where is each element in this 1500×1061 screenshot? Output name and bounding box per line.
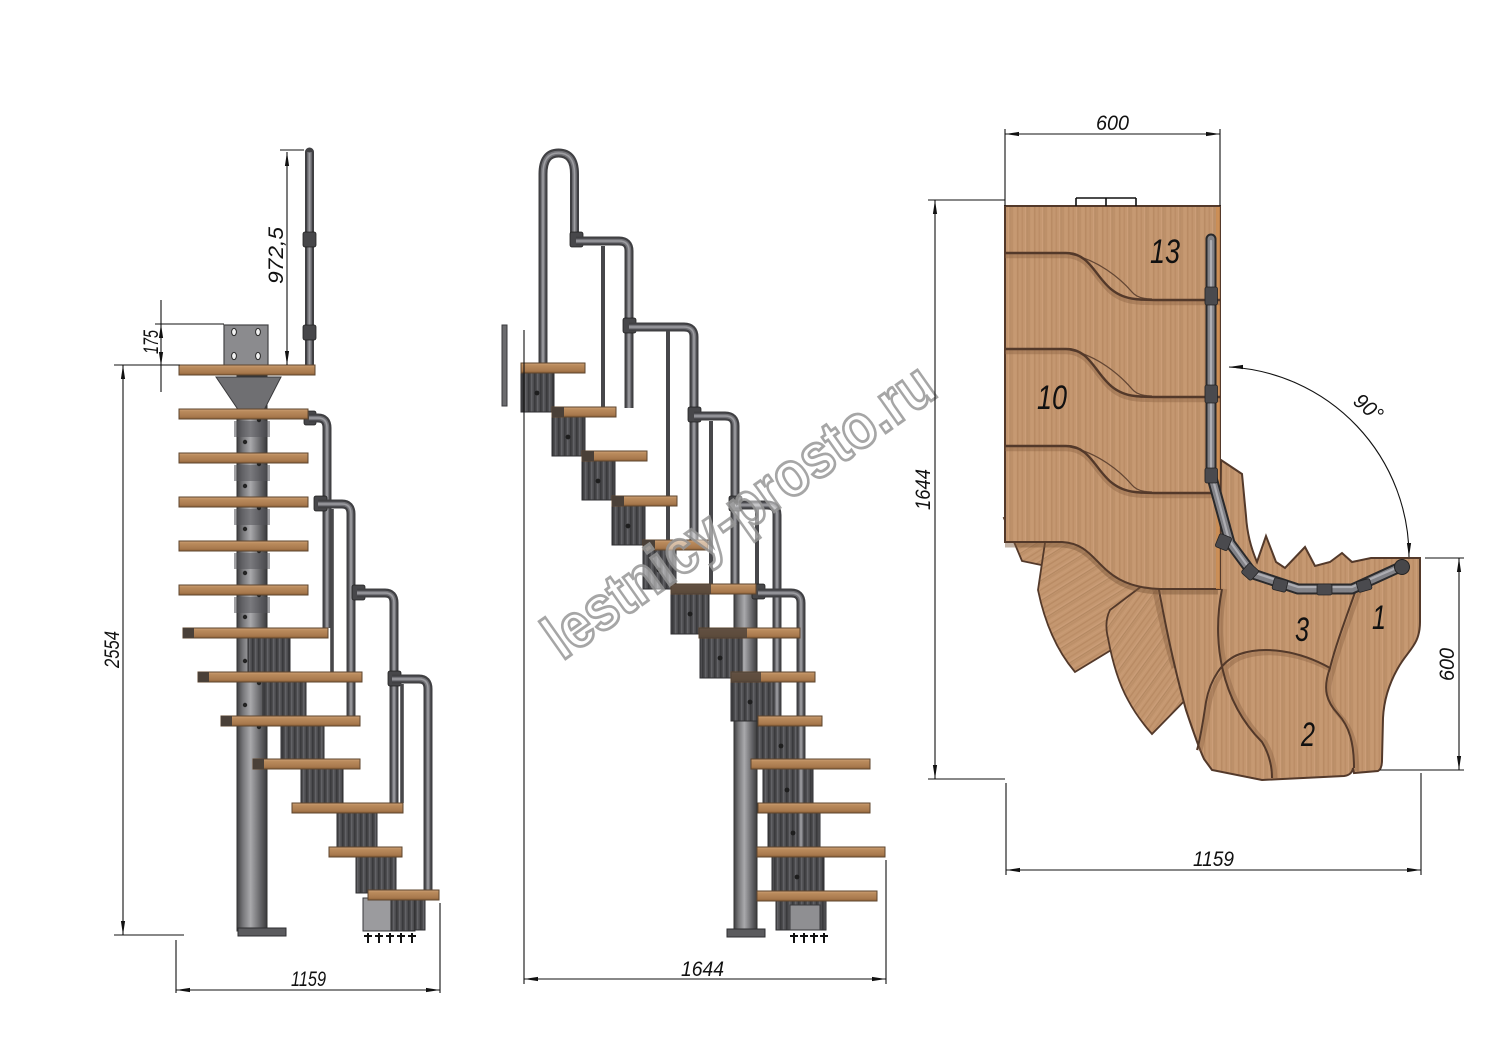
- svg-text:600: 600: [1436, 648, 1459, 681]
- svg-text:1159: 1159: [1193, 848, 1234, 871]
- svg-text:13: 13: [1150, 233, 1180, 271]
- svg-text:1644: 1644: [912, 469, 935, 510]
- svg-text:2: 2: [1300, 716, 1315, 754]
- svg-text:3: 3: [1295, 611, 1309, 649]
- svg-text:972,5: 972,5: [265, 227, 288, 284]
- svg-text:1644: 1644: [681, 958, 724, 981]
- svg-text:175: 175: [140, 330, 163, 354]
- svg-text:1159: 1159: [291, 968, 326, 991]
- svg-text:600: 600: [1096, 112, 1129, 135]
- svg-text:1: 1: [1372, 599, 1386, 637]
- svg-text:2554: 2554: [101, 631, 124, 669]
- svg-text:10: 10: [1037, 379, 1067, 417]
